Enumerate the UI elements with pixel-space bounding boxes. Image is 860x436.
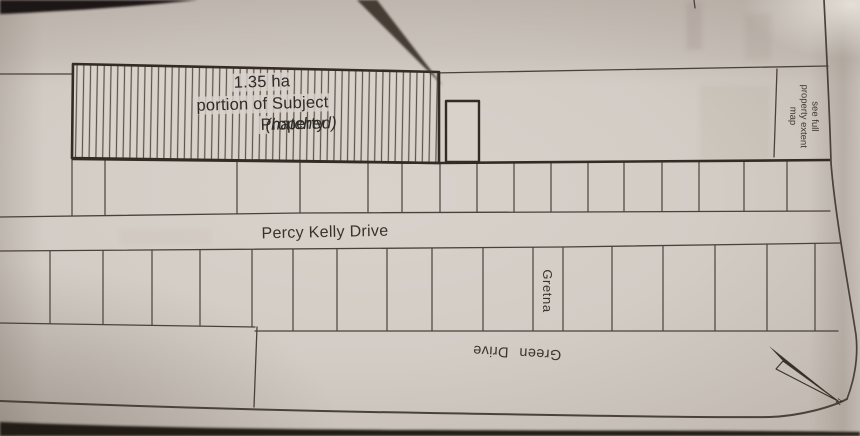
subject-property-line2: portion of Subject	[193, 93, 331, 115]
north-arrow-n-label: N	[834, 397, 845, 407]
side-note-line3: map	[787, 107, 798, 126]
side-note-line1: see full	[809, 101, 821, 131]
subject-property-label: 1.35 ha portion of Subject Property (hat…	[149, 69, 376, 139]
side-note-label: see full property extent map	[786, 73, 820, 160]
street-label-green-drive: Green Drive	[437, 340, 598, 364]
subject-property-line3: Property (hatched)	[257, 116, 268, 134]
subject-property-area: 1.35 ha	[230, 72, 293, 92]
labels-layer: 1.35 ha portion of Subject Property (hat…	[0, 0, 860, 436]
street-label-percy-kelly-drive: Percy Kelly Drive	[225, 222, 425, 244]
street-label-gretna: Gretna	[539, 255, 555, 327]
scanned-plan-photo: 1.35 ha portion of Subject Property (hat…	[0, 0, 860, 436]
side-note-line2: property extent	[798, 84, 810, 148]
